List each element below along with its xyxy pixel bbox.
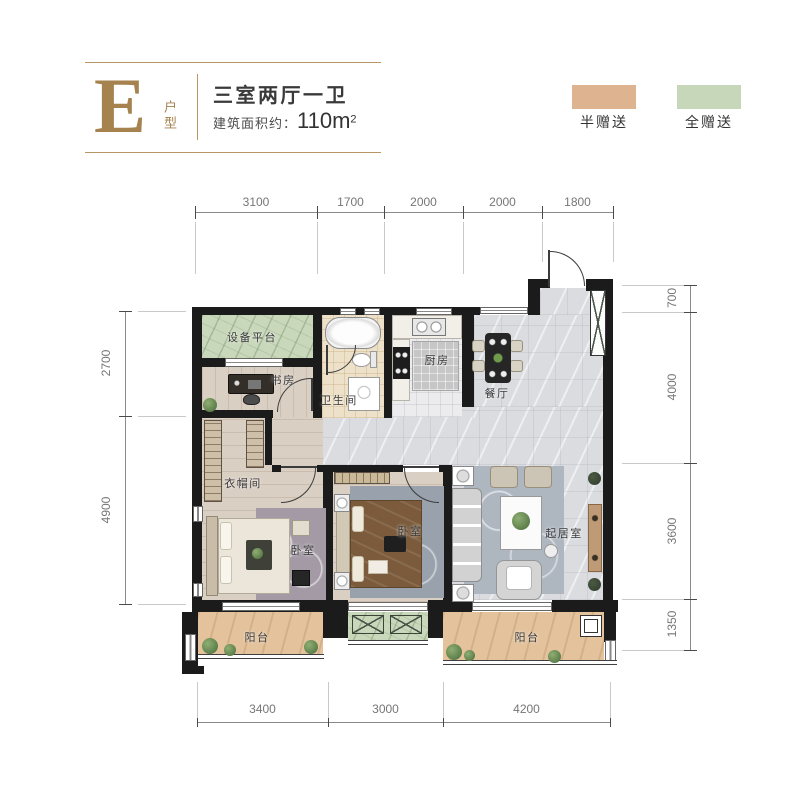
floorplan-page: E 户型 三室两厅一卫 建筑面积约：110m2 半赠送 全赠送 3100 170… — [0, 0, 800, 799]
wall-left — [192, 307, 202, 612]
window-foyer — [480, 307, 528, 314]
study-chair — [243, 394, 260, 405]
legend-label-full-gift: 全赠送 — [677, 112, 741, 132]
dim-value-left: 2700 — [99, 343, 113, 383]
toilet-bowl — [352, 353, 371, 367]
dim-extension — [542, 222, 543, 262]
area-value: 110m — [297, 108, 350, 133]
wall-bedroom-left-top-a — [272, 465, 281, 472]
dim-value-bottom: 3400 — [197, 702, 328, 716]
room-label-equipment-platform: 设备平台 — [222, 329, 282, 345]
window-bedroom-left-wall-b — [193, 583, 203, 597]
wall-gift-strip-right — [428, 600, 443, 638]
railing-balcony-left — [198, 654, 324, 659]
window-balcony-left — [185, 634, 196, 661]
legend-swatch-full-gift — [677, 85, 741, 109]
dim-extension — [138, 311, 186, 312]
room-label-balcony-right: 阳台 — [497, 629, 557, 645]
area-superscript: 2 — [350, 114, 356, 126]
room-label-study: 书房 — [253, 372, 313, 388]
living-side-table — [452, 584, 474, 602]
dim-line-top — [195, 212, 613, 213]
dim-tick — [613, 206, 614, 219]
cloakroom-wardrobe-right — [246, 420, 264, 468]
bed-magazine — [368, 560, 388, 574]
toilet-tank — [370, 351, 377, 368]
header-divider — [197, 74, 198, 140]
wall-living-bottom-right — [552, 600, 618, 612]
dining-chair — [472, 360, 485, 372]
room-label-dining: 餐厅 — [467, 385, 527, 401]
dim-tick — [684, 312, 697, 313]
dim-extension — [317, 222, 318, 274]
living-round-table — [544, 544, 558, 558]
bed-pillow — [352, 506, 364, 532]
dim-tick — [119, 416, 132, 417]
page-title: 三室两厅一卫 — [213, 79, 348, 108]
dim-extension — [138, 604, 186, 605]
dim-value-right: 4000 — [665, 367, 679, 407]
bed-pillow — [220, 522, 232, 550]
bed-pillow — [352, 556, 364, 582]
dim-extension — [610, 682, 611, 718]
room-label-cloakroom: 衣帽间 — [213, 475, 273, 491]
window-bathroom-a — [340, 308, 356, 315]
area-line: 建筑面积约：110m2 — [213, 108, 357, 134]
dim-extension — [138, 416, 186, 417]
wall-entry-step — [528, 279, 540, 315]
room-label-kitchen: 厨房 — [407, 352, 467, 368]
bedroom-mid-nightstand — [334, 572, 350, 590]
room-label-bathroom: 卫生间 — [309, 392, 369, 408]
study-plant — [203, 398, 217, 412]
dining-chair — [510, 340, 523, 352]
wall-bedroom-mid-top-a — [333, 465, 403, 472]
balcony-plant — [464, 650, 475, 661]
dim-value-top: 1700 — [317, 195, 384, 209]
balcony-equipment-box — [580, 615, 602, 637]
living-sofa — [452, 488, 482, 582]
entry-shaft-box — [590, 290, 606, 356]
wall-balcony-right — [604, 612, 616, 642]
room-label-balcony-left: 阳台 — [227, 629, 287, 645]
bedroom-mid-closet — [334, 472, 390, 484]
dim-line-right — [690, 285, 691, 650]
dim-value-bottom: 4200 — [443, 702, 610, 716]
dim-extension — [463, 222, 464, 274]
dim-value-top: 1800 — [542, 195, 613, 209]
living-plant — [588, 578, 601, 591]
window-living-balcony — [472, 602, 552, 611]
room-label-living: 起居室 — [534, 525, 594, 541]
bedroom-left-headboard — [206, 516, 218, 596]
dining-chair — [472, 340, 485, 352]
bed-pillow — [220, 556, 232, 584]
room-label-bedroom-mid: 卧室 — [380, 523, 440, 539]
ac-unit-box — [390, 615, 422, 634]
window-bedroom-left-balcony — [222, 602, 300, 611]
coffee-table-plant — [512, 512, 530, 530]
dim-value-right: 1350 — [665, 604, 679, 644]
unit-letter: E — [94, 67, 146, 145]
wall-bathroom-right — [384, 315, 392, 418]
dim-value-top: 3100 — [195, 195, 317, 209]
wall-living-divider — [443, 465, 452, 612]
balcony-plant — [202, 638, 218, 654]
wall-balcony-left-foot — [182, 666, 204, 674]
dim-value-right: 700 — [665, 278, 679, 318]
railing-gift-strip — [348, 640, 428, 645]
dim-value-left: 4900 — [99, 490, 113, 530]
legend-label-half-gift: 半赠送 — [572, 112, 636, 132]
dim-value-top: 2000 — [463, 195, 542, 209]
living-ottoman — [490, 466, 518, 488]
window-bedroom-left-wall-a — [193, 506, 203, 522]
dim-extension — [622, 650, 684, 651]
balcony-plant — [548, 650, 561, 663]
legend-swatch-half-gift — [572, 85, 636, 109]
dim-tick — [684, 599, 697, 600]
room-label-bedroom-left: 卧室 — [273, 542, 333, 558]
dim-tick — [684, 650, 697, 651]
wall-hall-left — [265, 417, 272, 465]
living-ottoman — [524, 466, 552, 488]
balcony-plant — [224, 644, 236, 656]
entry-door-arc — [550, 251, 585, 286]
balcony-plant — [446, 644, 462, 660]
armchair-cushion — [506, 566, 532, 590]
dim-extension — [384, 222, 385, 274]
window-bathroom-b — [364, 308, 380, 315]
dim-value-top: 2000 — [384, 195, 463, 209]
ac-unit-box — [352, 615, 384, 634]
unit-letter-suffix: 户型 — [160, 100, 179, 146]
dim-value-right: 3600 — [665, 511, 679, 551]
living-side-table — [452, 466, 474, 486]
area-prefix: 建筑面积约： — [213, 116, 297, 131]
living-plant — [588, 472, 601, 485]
dim-tick — [684, 463, 697, 464]
window-platform-study — [225, 358, 283, 367]
bedroom-mid-nightstand — [334, 494, 350, 512]
wall-gift-strip-left — [323, 600, 348, 638]
window-bedroom-mid — [348, 602, 428, 611]
dim-extension — [622, 599, 684, 600]
balcony-plant — [304, 640, 318, 654]
dining-table — [485, 333, 511, 383]
dim-extension — [195, 222, 196, 274]
dim-line-left — [125, 311, 126, 604]
dining-chair — [510, 360, 523, 372]
kitchen-sink — [412, 318, 446, 336]
bed-deco-plant — [252, 548, 263, 559]
dim-value-bottom: 3000 — [328, 702, 443, 716]
dim-tick — [119, 604, 132, 605]
dim-line-bottom — [197, 722, 610, 723]
dim-extension — [613, 222, 614, 262]
bedroom-left-side-table — [292, 570, 310, 586]
dim-extension — [622, 463, 684, 464]
bedroom-left-nightstand — [292, 520, 310, 536]
header-rule-bottom — [85, 152, 381, 153]
window-kitchen — [416, 308, 452, 315]
dim-tick — [119, 311, 132, 312]
dim-tick — [684, 285, 697, 286]
